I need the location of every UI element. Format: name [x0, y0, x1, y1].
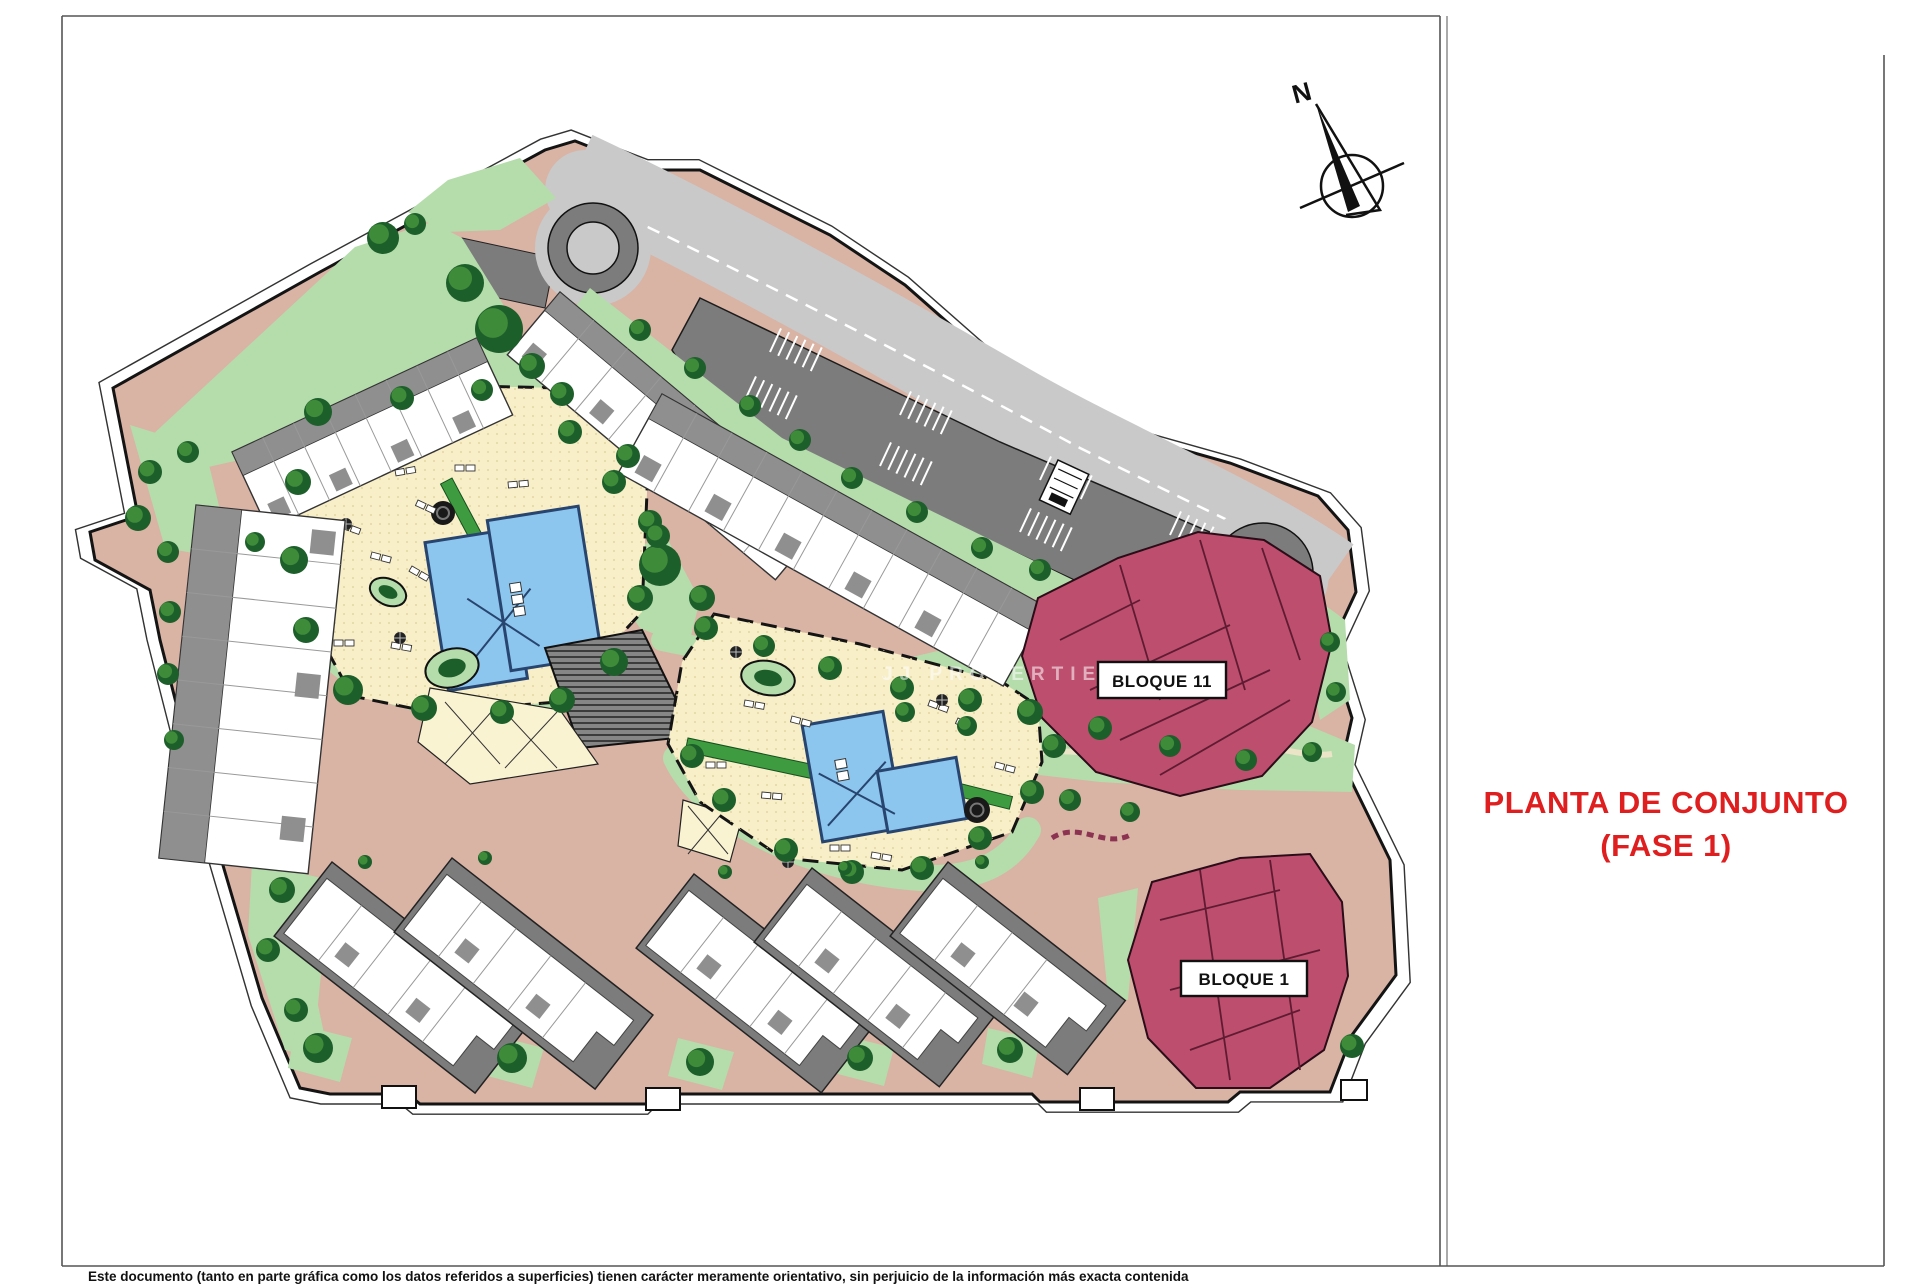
spa-circle — [964, 797, 990, 823]
drawing-sheet: BLOQUE 11 BLOQUE 1 JJ PROPERTIES N PLANT… — [0, 0, 1920, 1280]
north-compass: N — [1289, 76, 1404, 217]
title-line-1: PLANTA DE CONJUNTO — [1450, 782, 1882, 825]
spa-circle — [431, 501, 455, 525]
north-label: N — [1289, 76, 1315, 110]
title-line-2: (FASE 1) — [1450, 825, 1882, 868]
site-plan-canvas: BLOQUE 11 BLOQUE 1 JJ PROPERTIES N — [0, 0, 1920, 1280]
disclaimer-text: Este documento (tanto en parte gráfica c… — [88, 1269, 1189, 1284]
roundabout-northwest — [535, 190, 651, 306]
bloque-11-label: BLOQUE 11 — [1112, 672, 1212, 691]
bloque-1-building: BLOQUE 1 — [1128, 854, 1348, 1088]
bloque-1-label: BLOQUE 1 — [1199, 970, 1290, 989]
watermark: JJ PROPERTIES — [882, 664, 1122, 685]
drawing-title: PLANTA DE CONJUNTO (FASE 1) — [1450, 782, 1882, 868]
